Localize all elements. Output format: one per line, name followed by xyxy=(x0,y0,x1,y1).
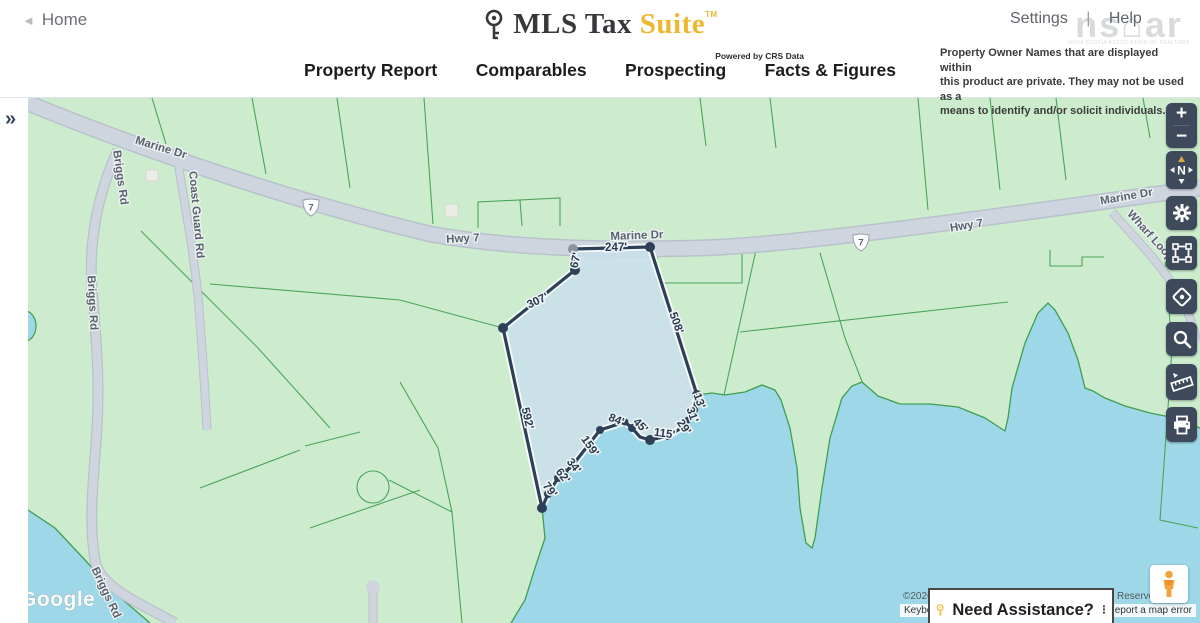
tab-comparables[interactable]: Comparables xyxy=(476,60,587,81)
ruler-icon xyxy=(1169,369,1195,395)
pegman-icon xyxy=(1160,570,1178,598)
street-view-pegman[interactable] xyxy=(1150,565,1188,603)
app-window: ◄ Home MLS Tax SuiteTM Powered by CRS Da… xyxy=(0,0,1200,623)
header: ◄ Home MLS Tax SuiteTM Powered by CRS Da… xyxy=(0,0,1200,98)
compass-icon: N xyxy=(1168,154,1195,186)
draw-shape-button[interactable] xyxy=(1166,236,1197,270)
zoom-out-button[interactable]: − xyxy=(1166,126,1197,148)
assistance-menu-icon[interactable]: ⁝ xyxy=(1102,605,1106,615)
compass-button[interactable]: N xyxy=(1166,151,1197,189)
map-svg: Marine Dr Hwy 7 Marine Dr Hwy 7 Marine D… xyxy=(28,98,1200,623)
tab-prospecting[interactable]: Prospecting xyxy=(625,60,726,81)
report-map-error-link[interactable]: Report a map error xyxy=(1104,604,1196,617)
map-canvas[interactable]: Marine Dr Hwy 7 Marine Dr Hwy 7 Marine D… xyxy=(28,98,1200,623)
cul-de-sac xyxy=(366,580,380,594)
tab-property-report[interactable]: Property Report xyxy=(304,60,437,81)
brand-suffix: Suite xyxy=(640,8,705,40)
svg-text:247': 247' xyxy=(605,242,627,254)
privacy-disclaimer: Property Owner Names that are displayed … xyxy=(940,46,1188,119)
assistance-key-icon xyxy=(936,593,944,623)
svg-text:Hwy 7: Hwy 7 xyxy=(446,232,480,246)
draw-polygon-icon xyxy=(1170,241,1194,265)
help-link[interactable]: Help xyxy=(1109,10,1142,27)
expand-panel-chevron-icon[interactable]: » xyxy=(5,108,16,131)
trademark: TM xyxy=(705,10,718,19)
printer-icon xyxy=(1170,413,1194,437)
svg-text:7: 7 xyxy=(308,203,313,214)
svg-text:Marine Dr: Marine Dr xyxy=(610,229,664,243)
svg-text:N: N xyxy=(1177,164,1186,178)
need-assistance-label: Need Assistance? xyxy=(952,601,1094,620)
print-button[interactable] xyxy=(1166,407,1197,442)
link-divider: | xyxy=(1086,10,1090,27)
map-settings-button[interactable] xyxy=(1166,196,1197,230)
collapsed-panel-strip xyxy=(0,98,28,623)
search-icon xyxy=(1170,327,1194,351)
brand-tagline: Powered by CRS Data xyxy=(592,51,804,61)
google-logo[interactable]: Google xyxy=(28,588,95,611)
map-search-button[interactable] xyxy=(1166,322,1197,356)
key-icon xyxy=(482,9,506,41)
gear-icon xyxy=(1171,202,1193,224)
header-right: ns⌂ar NOVA SCOTIA ASSOCIATION OF REALTOR… xyxy=(930,10,1190,28)
settings-link[interactable]: Settings xyxy=(1010,10,1068,27)
locate-crosshair-icon xyxy=(1170,285,1194,309)
locate-button[interactable] xyxy=(1166,279,1197,314)
tab-facts-figures[interactable]: Facts & Figures xyxy=(765,60,896,81)
measure-button[interactable] xyxy=(1166,364,1197,400)
need-assistance-popup[interactable]: Need Assistance? ⁝ xyxy=(928,588,1114,623)
brand-prefix: MLS Tax xyxy=(513,8,632,40)
svg-text:7: 7 xyxy=(858,238,863,249)
